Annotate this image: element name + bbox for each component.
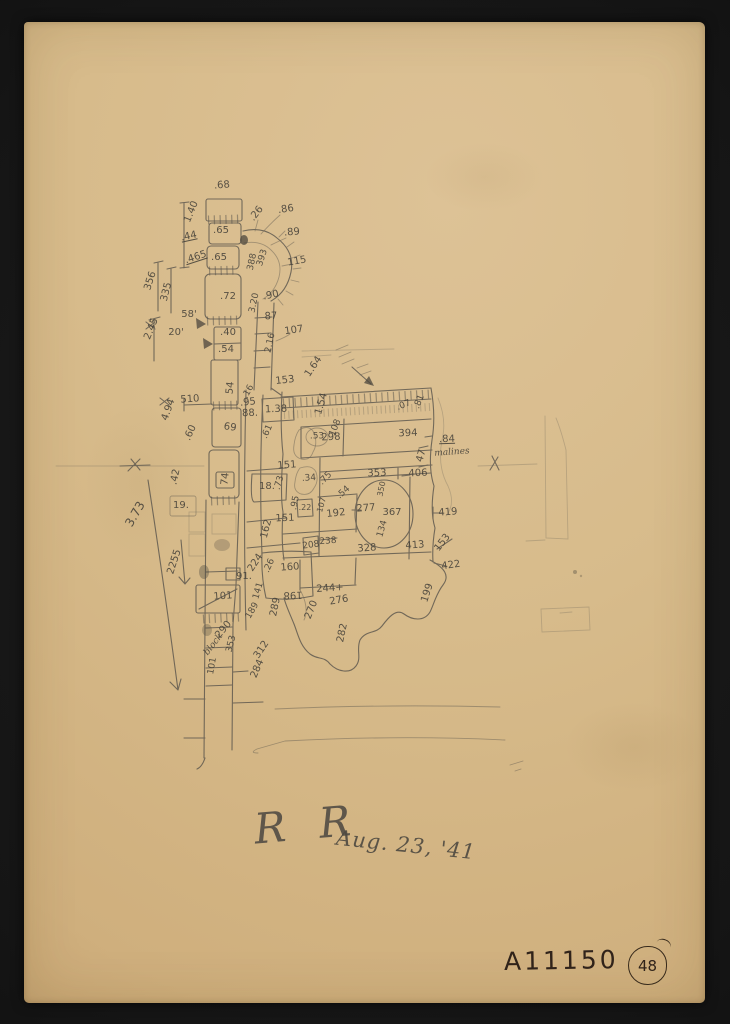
page-number: 48 <box>638 957 657 975</box>
page-number-circle: 48 <box>628 946 667 985</box>
pencil-plan-sketch <box>0 0 730 1024</box>
scanned-page: .681.40.44.4653563352.45.65.65.7258'20'.… <box>0 0 730 1024</box>
catalog-number: A11150 <box>504 945 619 976</box>
